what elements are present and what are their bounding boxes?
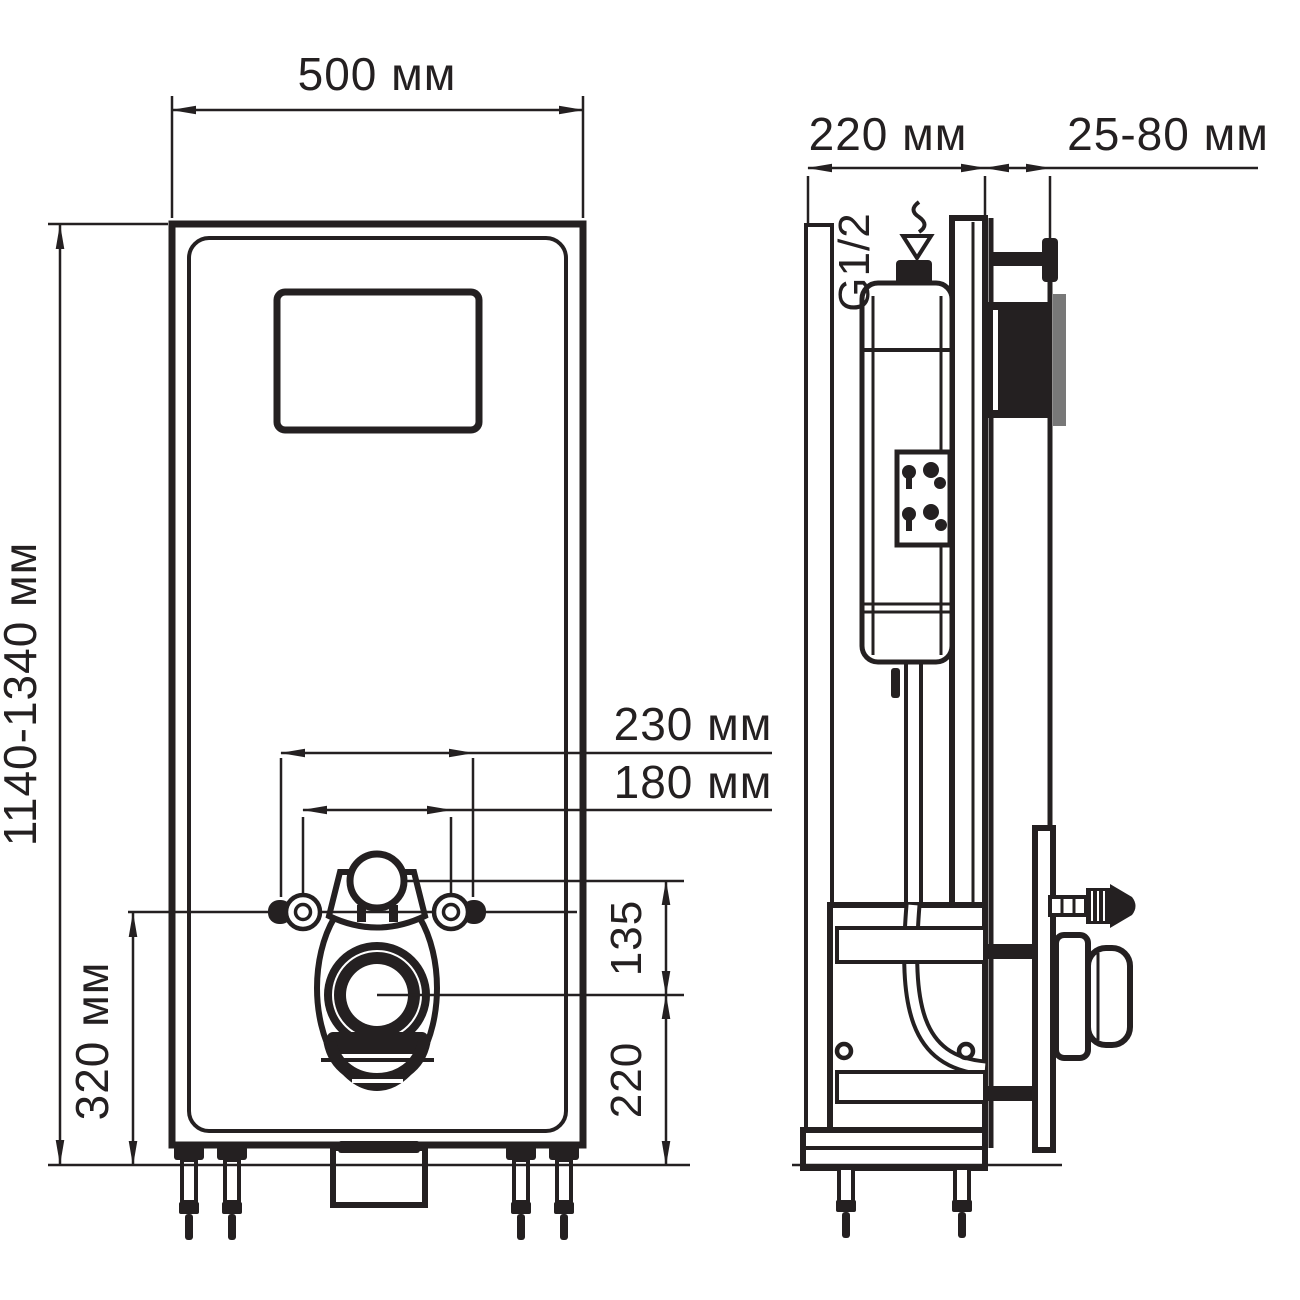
bracket-bolt-hole	[837, 1044, 851, 1058]
anchor-rail-channel	[1035, 828, 1053, 1150]
protection-box	[988, 294, 1066, 426]
dim-width-label: 500 мм	[298, 48, 457, 100]
side-view	[792, 202, 1136, 1238]
drain-clamp-bar	[327, 1032, 428, 1054]
fill-valve-block	[897, 452, 950, 545]
base-bracket-rail	[837, 928, 985, 962]
anchor-rod	[1050, 884, 1136, 928]
label-inlet-thread: G1/2	[830, 212, 879, 311]
foot	[506, 1146, 536, 1240]
dimension-mount-height-320: 320 мм	[66, 913, 133, 1165]
dim-outlet-height-label: 220	[602, 1042, 651, 1118]
dim-mount-height-label: 320 мм	[66, 962, 118, 1121]
foot	[174, 1146, 204, 1240]
drain-wall-coupling	[1056, 935, 1130, 1058]
dimension-depth-220: 220 мм	[808, 108, 985, 226]
dim-mount-spacing-wide-label: 230 мм	[614, 698, 773, 750]
front-view	[48, 224, 690, 1240]
floor-drain-box-cap	[338, 1141, 420, 1153]
frame-to-rail-bar	[985, 1086, 1037, 1101]
dim-height-label: 1140-1340 мм	[0, 542, 46, 847]
foot	[217, 1146, 247, 1240]
dimension-outlet-height-220: 220	[602, 995, 666, 1165]
drawing-canvas: 500 мм 1140-1340 мм 230 мм 180 мм 135 22…	[0, 0, 1300, 1300]
foot	[836, 1168, 856, 1238]
protection-box-plate	[1053, 294, 1066, 426]
flush-plate-window	[277, 292, 479, 430]
foot	[952, 1168, 972, 1238]
flush-pipe-leg	[389, 905, 398, 922]
cone-nut	[1110, 884, 1136, 928]
dim-wall-offset-label: 25-80 мм	[1067, 108, 1269, 160]
bracket-bolt-hole	[959, 1044, 973, 1058]
flush-pipe-fitting	[350, 854, 404, 908]
base-bracket-rail	[837, 1072, 985, 1102]
dim-depth-label: 220 мм	[809, 108, 968, 160]
inlet-cap	[896, 260, 932, 285]
top-wall-bracket-plate	[1042, 238, 1058, 282]
top-wall-bracket-bar	[990, 252, 1044, 266]
flush-pipe-leg	[357, 905, 366, 922]
dimension-width-500: 500 мм	[172, 48, 583, 218]
foot	[549, 1146, 579, 1240]
dim-mount-spacing-narrow-label: 180 мм	[614, 756, 773, 808]
dim-flush-to-outlet-label: 135	[602, 900, 651, 976]
pipe-bracket-tab	[891, 668, 900, 698]
installation-frame-technical-drawing: 500 мм 1140-1340 мм 230 мм 180 мм 135 22…	[0, 0, 1300, 1300]
floor-drain-box	[333, 1148, 425, 1205]
water-inlet-icon	[903, 202, 931, 258]
frame-to-rail-bar	[985, 944, 1037, 959]
dimension-wall-offset-25-80: 25-80 мм	[985, 108, 1269, 242]
inlet-thread-label: G1/2	[830, 212, 879, 311]
